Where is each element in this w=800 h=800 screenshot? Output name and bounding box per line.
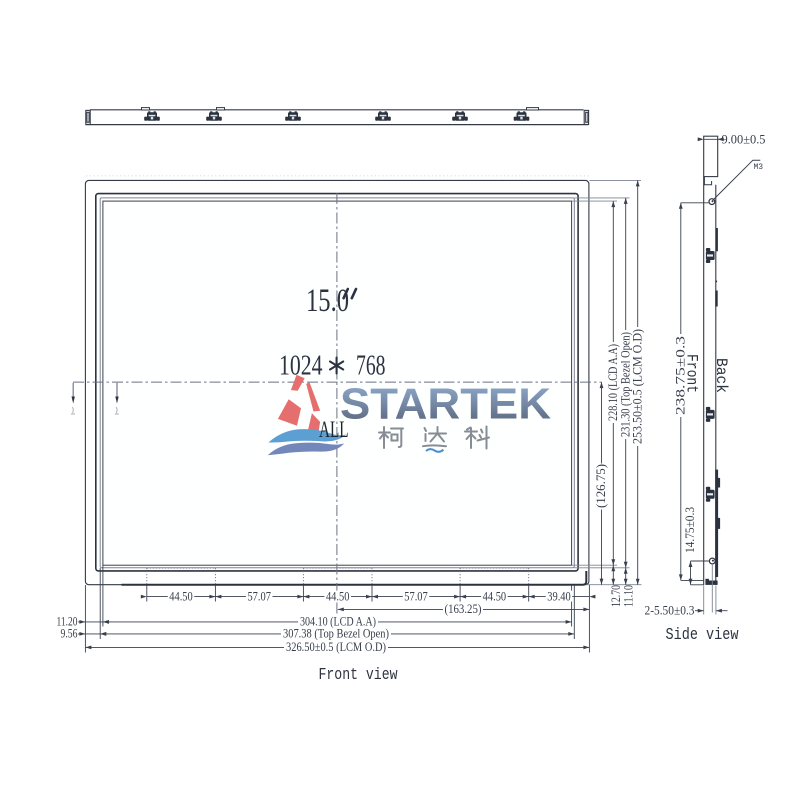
svg-text:253.50±0.5 (LCM O.D): 253.50±0.5 (LCM O.D) <box>630 329 644 444</box>
svg-text:326.50±0.5 (LCM O.D): 326.50±0.5 (LCM O.D) <box>286 640 386 654</box>
svg-text:307.38 (Top Bezel Open): 307.38 (Top Bezel Open) <box>283 627 389 641</box>
svg-text:14.75±0.3: 14.75±0.3 <box>683 507 697 553</box>
svg-text:39.40: 39.40 <box>547 589 571 603</box>
svg-text:57.07: 57.07 <box>404 589 428 603</box>
svg-text:44.50: 44.50 <box>326 589 350 603</box>
svg-text:11.10: 11.10 <box>621 585 635 607</box>
svg-text:9.00±0.5: 9.00±0.5 <box>722 133 766 147</box>
svg-text:15.0: 15.0 <box>306 283 349 319</box>
svg-text:(126.75): (126.75) <box>594 464 608 508</box>
svg-text:44.50: 44.50 <box>169 589 193 603</box>
svg-text:(163.25): (163.25) <box>445 602 482 616</box>
svg-text:STARTEK: STARTEK <box>340 381 552 429</box>
svg-text:57.07: 57.07 <box>247 589 271 603</box>
svg-text:Front view: Front view <box>319 665 398 684</box>
svg-text:768: 768 <box>356 351 386 382</box>
svg-text:Side view: Side view <box>666 625 739 644</box>
svg-text:2-5.50±0.3: 2-5.50±0.3 <box>645 603 695 617</box>
svg-text:M3: M3 <box>754 163 764 172</box>
svg-text:Front: Front <box>683 354 701 393</box>
svg-text:Back: Back <box>712 358 730 393</box>
svg-text:44.50: 44.50 <box>483 589 507 603</box>
svg-text:9.56: 9.56 <box>61 627 78 641</box>
